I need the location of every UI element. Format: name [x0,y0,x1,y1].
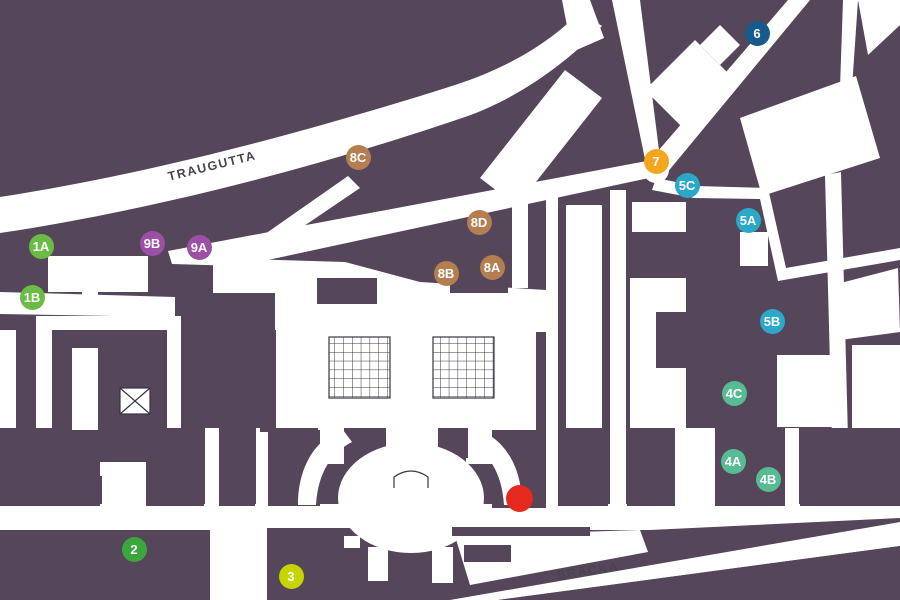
map-marker-2[interactable]: 2 [122,537,147,562]
map-marker-1a[interactable]: 1A [29,234,54,259]
street-vertical-2 [610,190,626,510]
map-marker-5b[interactable]: 5B [760,309,785,334]
map-marker-8a[interactable]: 8A [480,255,505,280]
map-marker-4a[interactable]: 4A [721,449,746,474]
map-marker-7[interactable]: 7 [644,149,669,174]
map-marker-9a[interactable]: 9A [187,235,212,260]
courtyard-x-box [120,388,150,414]
map-marker-3[interactable]: 3 [279,564,304,589]
block-south-west [0,532,210,600]
basemap-svg [0,0,900,600]
map-marker-8b[interactable]: 8B [434,261,459,286]
map-marker-9b[interactable]: 9B [140,231,165,256]
building-1a [48,256,148,292]
map-canvas[interactable]: TRAUGUTTABRACKA 1A1B234A4B4C5A5B5C678A8B… [0,0,900,600]
glass-roof-grid-left [329,337,390,398]
map-marker-5a[interactable]: 5A [736,208,761,233]
glass-roof-grid-right [433,337,494,398]
map-marker-4c[interactable]: 4C [722,381,747,406]
map-marker-8d[interactable]: 8D [467,210,492,235]
map-marker-4b[interactable]: 4B [756,467,781,492]
map-marker-1b[interactable]: 1B [20,285,45,310]
highlighted-location-dot [506,485,533,512]
map-marker-6[interactable]: 6 [745,21,770,46]
street-vertical-1 [546,190,558,510]
map-marker-5c[interactable]: 5C [675,173,700,198]
map-marker-8c[interactable]: 8C [346,145,371,170]
